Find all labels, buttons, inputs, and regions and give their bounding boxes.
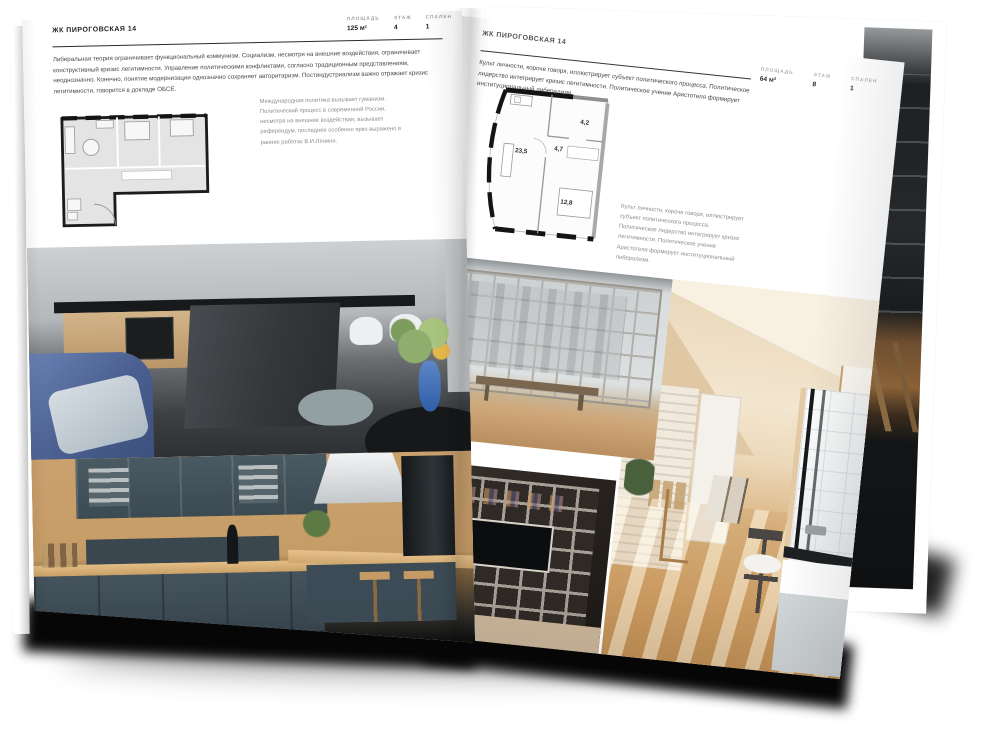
bar-stool-shape [359, 571, 391, 622]
dishes-shape [238, 464, 278, 503]
oven-shape [125, 317, 174, 360]
stat-label: ЭТАЖ [394, 16, 412, 21]
bench-leg-shape [484, 384, 490, 401]
stat-label: ПЛОЩАДЬ [760, 68, 793, 76]
tv-shape [465, 518, 554, 574]
room-area-label: 4,2 [580, 119, 590, 127]
apartment-stats: ПЛОЩАДЬ 125 м² ЭТАЖ 4 СПАЛЕН 1 [347, 15, 453, 32]
bathtub-shape [771, 560, 851, 677]
jars-shape [42, 543, 78, 567]
dishes-shape [89, 467, 129, 506]
stat-bedrooms: СПАЛЕН 1 [850, 77, 878, 95]
stat-bedrooms: СПАЛЕН 1 [426, 15, 453, 31]
fridge-shape [401, 455, 456, 556]
left-page: ЖК ПИРОГОВСКАЯ 14 ПЛОЩАДЬ 125 м² ЭТАЖ 4 … [22, 11, 475, 652]
stat-value: 1 [850, 85, 877, 95]
blue-vase-shape [419, 360, 442, 411]
stat-floor: ЭТАЖ 4 [394, 16, 412, 31]
stat-label: ЭТАЖ [813, 73, 831, 80]
room-area-label: 4,7 [554, 145, 564, 153]
floor-plan-64: 23,5 4,7 4,2 12,8 [462, 82, 618, 246]
magazine-mockup: ЖК ПИРОГОВСКАЯ 14 Культ личности, короче… [0, 0, 991, 740]
bar-stool-shape [403, 571, 435, 622]
stat-floor: ЭТАЖ 8 [812, 73, 831, 90]
bench-leg-shape [578, 394, 584, 411]
grey-kitchen-photo [27, 239, 471, 460]
pouf-shape [298, 389, 374, 427]
room-area-label: 23,5 [515, 147, 528, 155]
page-title: ЖК ПИРОГОВСКАЯ 14 [482, 30, 567, 46]
body-paragraph: Либеральная теория ограничивает функцион… [53, 47, 442, 97]
stat-label: СПАЛЕН [426, 15, 453, 21]
room-area-label: 12,8 [560, 199, 573, 207]
stat-value: 4 [394, 24, 412, 31]
stat-area: ПЛОЩАДЬ 125 м² [347, 17, 380, 33]
floor-plan-125 [58, 109, 212, 231]
leaning-frames-shape [704, 475, 768, 526]
header-rule [53, 38, 443, 47]
bottle-shape [226, 525, 238, 564]
plan-caption: Культ личности, короче говоря, иллюстрир… [615, 202, 747, 276]
stat-label: ПЛОЩАДЬ [347, 17, 380, 23]
stat-value: 125 м² [347, 25, 380, 33]
stat-label: СПАЛЕН [851, 77, 878, 85]
stat-area: ПЛОЩАДЬ 64 м² [759, 68, 793, 86]
flowers-shape [385, 315, 461, 367]
stat-value: 64 м² [759, 75, 793, 85]
range-hood-shape [313, 452, 411, 504]
stat-value: 1 [426, 23, 453, 31]
stat-value: 8 [812, 81, 830, 90]
apartment-stats: ПЛОЩАДЬ 64 м² ЭТАЖ 8 СПАЛЕН 1 [759, 68, 877, 95]
page-title: ЖК ПИРОГОВСКАЯ 14 [52, 26, 137, 35]
plan-caption: Международная политика вызывает гуманизм… [260, 94, 411, 148]
plant-shape [296, 509, 336, 544]
white-chair-shape [349, 317, 383, 345]
